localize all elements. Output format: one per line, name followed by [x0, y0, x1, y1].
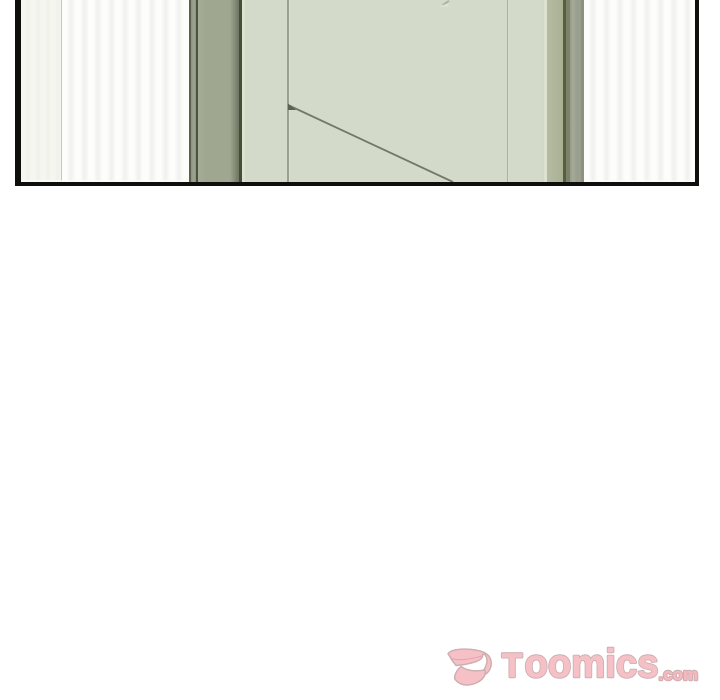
svg-text:oomics: oomics — [525, 642, 659, 686]
svg-text:.com: .com — [659, 665, 699, 684]
svg-text:T: T — [502, 647, 523, 685]
